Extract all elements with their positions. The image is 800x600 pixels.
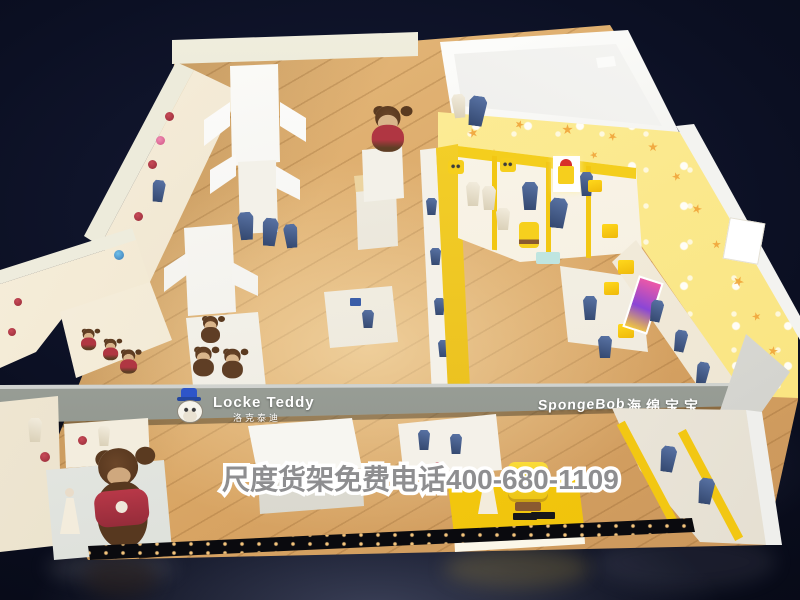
yellow-box — [602, 224, 618, 238]
gondola-sign — [350, 298, 361, 306]
yellow-box — [604, 282, 619, 295]
store-render: Locke Teddy 洛克泰迪 SpongeBob 海绵宝宝 尺度货架免费电话… — [0, 0, 800, 600]
spongebob-poster — [553, 156, 580, 192]
teddy-bear-plush — [102, 339, 120, 361]
locke-teddy-logo — [172, 388, 206, 422]
denim-garment — [362, 310, 374, 328]
teddy-bear-plush — [80, 329, 98, 351]
watermark: 尺度货架免费电话400-680-1109 尺度货架免费电话400-680-110… — [222, 458, 782, 502]
spongebob-pants — [515, 502, 541, 511]
bear-head-icon — [177, 400, 203, 423]
plush-item — [14, 298, 22, 306]
plush-item — [148, 160, 157, 169]
teddy-sweater — [93, 488, 150, 529]
denim-garment — [450, 434, 462, 454]
teddy-bear-plush — [200, 316, 222, 343]
white-garment — [482, 186, 496, 210]
teddy-bear-plush — [192, 347, 216, 377]
wall-display-box — [723, 217, 766, 265]
teddy-bear-plush — [119, 349, 139, 373]
denim-dress — [522, 182, 538, 210]
spongebob-head-figure — [448, 160, 464, 174]
plush-item — [78, 436, 87, 445]
plush-item — [134, 212, 143, 221]
yellow-platform-reflection — [444, 548, 590, 588]
watermark-text: 尺度货架免费电话400-680-1109 — [222, 458, 619, 498]
teddy-bear-mascot — [370, 106, 407, 152]
white-garment — [466, 182, 480, 206]
hanging-dress — [28, 418, 42, 442]
spongebob-sign: SpongeBob — [538, 395, 626, 413]
plush-item — [8, 328, 16, 336]
plush-item — [156, 136, 165, 145]
child-mannequin — [58, 488, 82, 546]
white-garment — [496, 208, 510, 230]
spongebob-plush — [519, 222, 539, 248]
spongebob-head-figure — [500, 158, 516, 172]
kids-bench — [536, 252, 560, 264]
locke-teddy-sign-cn: 洛克泰迪 — [233, 411, 281, 424]
hanging-dress — [98, 426, 110, 446]
plush-item — [40, 452, 50, 462]
yellow-box — [588, 180, 602, 192]
locke-teddy-sign: Locke Teddy — [213, 394, 315, 411]
denim-garment — [430, 248, 441, 265]
teddy-reflection — [84, 556, 158, 598]
denim-garment — [583, 296, 597, 320]
plush-item — [114, 250, 124, 260]
denim-garment — [598, 336, 612, 358]
big-teddy-mascot — [86, 445, 157, 554]
denim-garment — [418, 430, 430, 450]
plush-item — [165, 112, 174, 121]
denim-garment — [434, 298, 445, 315]
denim-garment — [426, 198, 437, 215]
teddy-bear-plush — [221, 349, 245, 379]
yellow-box — [618, 260, 634, 274]
